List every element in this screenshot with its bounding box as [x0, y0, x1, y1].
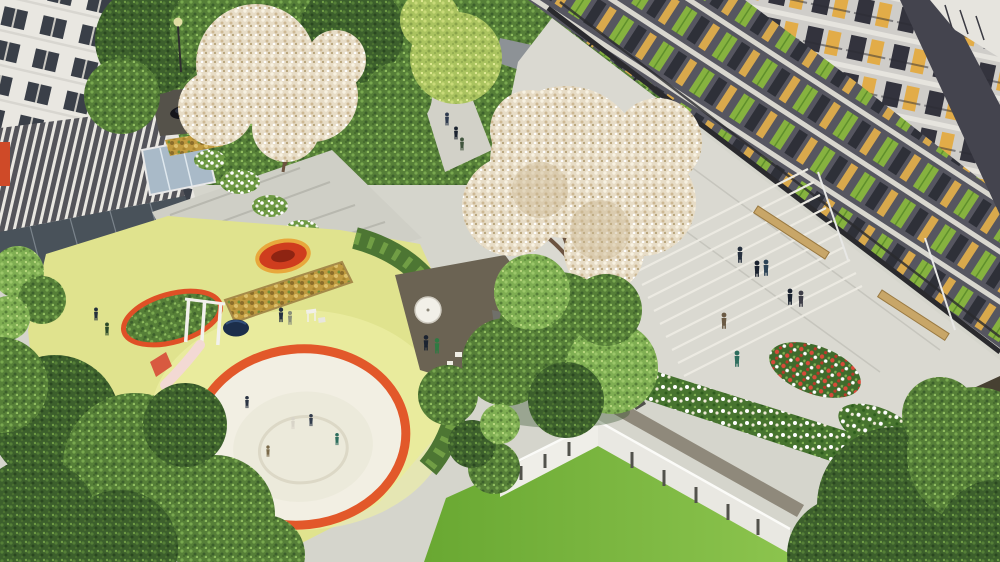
- navy-dome: [223, 320, 249, 337]
- rendering-canvas: [0, 0, 1000, 562]
- red-accent-panel: [0, 142, 10, 186]
- white-flower-bush: [194, 150, 226, 170]
- umbrella-pole: [427, 309, 430, 312]
- hedge-tree: [418, 365, 478, 425]
- white-flower-bush: [252, 195, 288, 217]
- courtyard-rendering: [0, 0, 1000, 562]
- cafe-table: [455, 352, 462, 357]
- white-flower-bush: [220, 170, 260, 194]
- cafe-chair: [447, 361, 453, 365]
